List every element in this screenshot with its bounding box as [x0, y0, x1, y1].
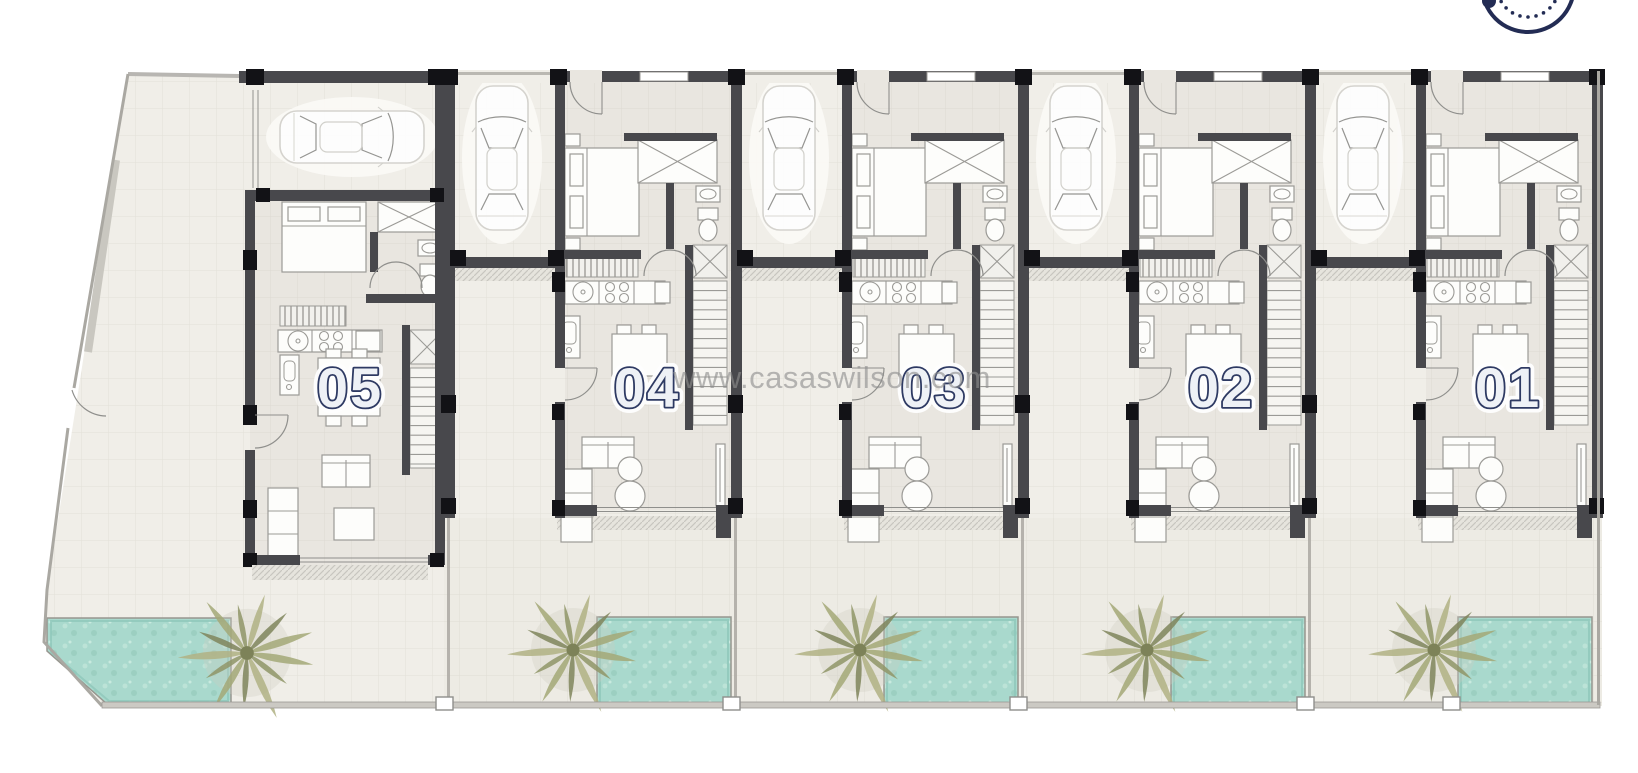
- unit-label-01: 01: [1475, 356, 1541, 419]
- fence-gate-post: [723, 697, 740, 710]
- window: [1501, 72, 1549, 81]
- kitchen-window-blind: [1140, 256, 1212, 277]
- bed: [1426, 134, 1500, 250]
- rear-fence: [102, 702, 1600, 708]
- entry-door-opening: [1431, 70, 1463, 83]
- carport-apron: [454, 268, 555, 281]
- entry-door-opening: [1144, 70, 1176, 83]
- bed: [565, 134, 639, 250]
- kitchen-window-blind: [280, 306, 346, 326]
- carport-apron: [1028, 268, 1129, 281]
- brand-logo-partial: [1482, 0, 1574, 32]
- laundry-sink: [280, 355, 299, 395]
- loveseat: [322, 455, 370, 487]
- fence-gate-post: [1443, 697, 1460, 710]
- wardrobe: [1212, 140, 1291, 183]
- staircase: [1554, 245, 1588, 425]
- bathroom: [696, 186, 720, 241]
- staircase: [1267, 245, 1301, 425]
- swimming-pool: [1171, 617, 1305, 706]
- kitchen-window-blind: [1427, 256, 1499, 277]
- window: [640, 72, 688, 81]
- entry-door-opening: [570, 70, 602, 83]
- car-icon: [462, 72, 542, 244]
- bed: [852, 134, 926, 250]
- fence-gate-post: [1010, 697, 1027, 710]
- swimming-pool: [884, 617, 1018, 706]
- wardrobe: [1499, 140, 1578, 183]
- car-icon: [749, 72, 829, 244]
- kitchen-window-blind: [853, 256, 925, 277]
- entry-door-opening: [857, 70, 889, 83]
- car-icon: [1036, 72, 1116, 244]
- watermark-text: www.casaswilson.com: [672, 360, 991, 395]
- wardrobe: [925, 140, 1004, 183]
- staircase: [693, 245, 727, 425]
- carport-opening: [1030, 70, 1126, 83]
- window: [1214, 72, 1262, 81]
- swimming-pool: [47, 618, 231, 704]
- sofa: [268, 488, 298, 558]
- yard-fence: [1021, 518, 1024, 704]
- yard-fence: [734, 518, 737, 704]
- wardrobe: [638, 140, 717, 183]
- kitchen-window-blind: [566, 256, 638, 277]
- car-icon: [266, 97, 438, 177]
- swimming-pool: [597, 617, 731, 706]
- yard-fence: [447, 518, 450, 704]
- car-icon: [1323, 72, 1403, 244]
- bed: [1139, 134, 1213, 250]
- bathroom: [1557, 186, 1581, 241]
- unit-label-04: 04: [614, 356, 680, 419]
- carport-opening: [1317, 70, 1413, 83]
- right-boundary: [1597, 71, 1600, 705]
- swimming-pool: [1458, 617, 1592, 706]
- wardrobe: [378, 202, 440, 232]
- carport-opening: [456, 70, 552, 83]
- carport-opening: [743, 70, 839, 83]
- bathroom: [1270, 186, 1294, 241]
- floor-plan-image: 05050404030302020101www.casaswilson.com: [0, 0, 1638, 773]
- bed: [282, 202, 366, 272]
- bathroom: [983, 186, 1007, 241]
- carport-apron: [1315, 268, 1416, 281]
- carport-apron: [741, 268, 842, 281]
- terrace-edge: [252, 565, 428, 580]
- floor-plan-canvas: 05050404030302020101www.casaswilson.com: [0, 0, 1638, 773]
- fence-gate-post: [436, 697, 453, 710]
- yard-fence: [1308, 518, 1311, 704]
- staircase: [980, 245, 1014, 425]
- unit-label-02: 02: [1188, 356, 1254, 419]
- unit-label-05: 05: [317, 356, 383, 419]
- fence-gate-post: [1297, 697, 1314, 710]
- watermark: www.casaswilson.com: [672, 360, 991, 395]
- window: [927, 72, 975, 81]
